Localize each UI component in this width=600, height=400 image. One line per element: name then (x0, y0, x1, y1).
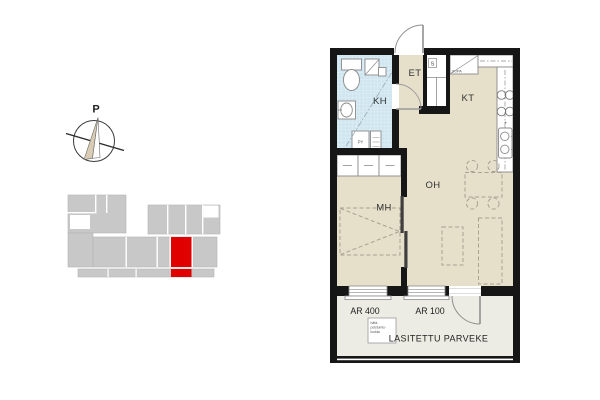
bedroom-wardrobes (337, 155, 401, 176)
compass-north-label: P (92, 104, 99, 116)
closet-label: S (431, 62, 435, 68)
key-plan-block (93, 237, 217, 267)
room-label-living: OH (425, 180, 440, 191)
key-plan-balcony-strip (78, 269, 214, 277)
key-plan-divider (185, 205, 186, 234)
key-plan-highlight-balcony (171, 269, 192, 277)
key-plan-notch (70, 215, 90, 229)
key-plan-divider (126, 237, 127, 267)
key-plan-divider (167, 205, 168, 234)
bathroom-door-opening (392, 84, 399, 109)
escape-hatch-text: luukku (371, 330, 381, 334)
window-label-ar400: AR 400 (350, 306, 379, 316)
balcony-floor (337, 296, 513, 356)
compass-rose: P (66, 104, 124, 162)
key-plan-divider (68, 212, 97, 213)
sliding-door-leaf (401, 196, 404, 233)
entrance-door-opening (394, 48, 424, 55)
key-plan-divider (108, 269, 109, 277)
toilet-tank (342, 59, 362, 70)
washer-label: PY (358, 140, 364, 145)
escape-hatch-text: poistumis- (371, 326, 386, 330)
key-plan (68, 195, 221, 277)
balcony-glazing-line (337, 359, 513, 361)
key-plan-divider (192, 237, 193, 267)
counter-knob (505, 122, 507, 124)
room-label-bathroom: KH (373, 96, 387, 107)
room-label-entry: ET (409, 68, 422, 79)
sliding-door-leaf (404, 231, 407, 268)
balcony-door-opening (449, 286, 481, 296)
key-plan-divider (95, 195, 96, 212)
room-label-kitchen: KT (462, 93, 475, 104)
window-ar100 (408, 286, 445, 296)
key-plan-divider (106, 195, 107, 213)
key-plan-divider (202, 205, 203, 234)
key-plan-divider (136, 269, 137, 277)
floor-plan-canvas: P (0, 0, 600, 400)
escape-hatch-text: hätä- (371, 321, 379, 325)
window-sill (345, 296, 391, 300)
window-label-ar100: AR 100 (415, 306, 444, 316)
key-plan-highlight-apartment (171, 237, 192, 267)
toilet-bowl (344, 70, 360, 91)
window-ar400 (349, 286, 387, 296)
window-sill (404, 296, 449, 300)
bathroom-small-unit (379, 68, 387, 77)
key-plan-divider (157, 237, 158, 267)
fridge-label: JK/PA (452, 70, 463, 74)
key-plan-divider (170, 237, 171, 267)
room-label-bedroom: MH (376, 203, 392, 214)
key-plan-notch (204, 206, 219, 218)
apartment-plan: hätä- poistumis- luukku ET KH KT OH MH S… (330, 25, 520, 363)
key-plan-block (68, 233, 93, 267)
floor-plan-page: P (0, 0, 600, 400)
balcony-label: LASITETTU PARVEKE (389, 334, 489, 344)
